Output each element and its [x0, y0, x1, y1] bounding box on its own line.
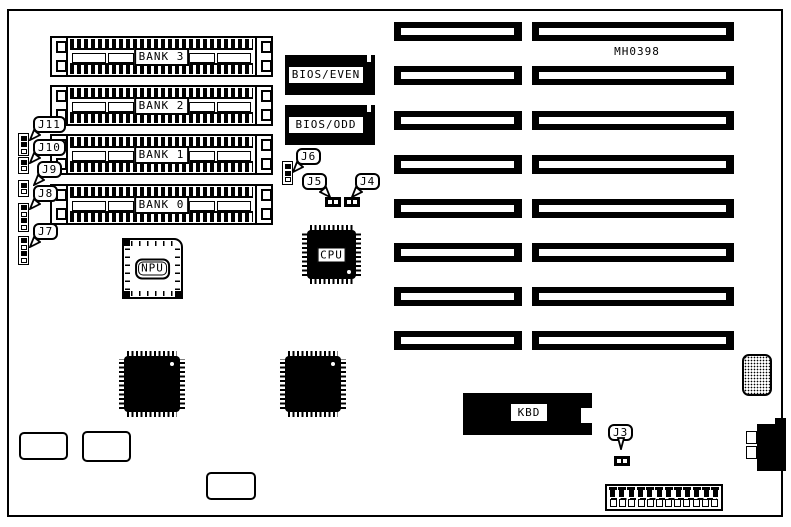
memory-bank-3: BANK 3: [50, 36, 273, 77]
chip-notch: [581, 408, 592, 423]
chip-pins-bottom: [288, 411, 338, 417]
power-socket-hole: [683, 499, 690, 507]
slot-opening: [539, 249, 726, 256]
simm-slot: [72, 53, 106, 63]
dip-socket: [206, 472, 256, 500]
expansion-slot-4-left: [394, 155, 522, 174]
power-socket-hole: [610, 499, 617, 507]
simm-slot: [217, 201, 251, 211]
socket-pins-bottom: [131, 291, 174, 296]
asic-chip-right: [280, 351, 346, 417]
expansion-slot-6-left: [394, 243, 522, 262]
edge-connector-pin-block: [746, 431, 757, 444]
simm-slot: [217, 102, 251, 112]
socket-pins-top: [131, 241, 174, 246]
power-pin: [657, 487, 662, 497]
asic-chip-left: [119, 351, 185, 417]
expansion-slot-8-right: [532, 331, 734, 350]
expansion-slot-2-left: [394, 66, 522, 85]
slot-opening: [401, 337, 514, 344]
cpu-label: CPU: [317, 247, 346, 262]
slot-opening: [539, 205, 726, 212]
kbd-label: KBD: [511, 404, 547, 421]
expansion-slot-7-left: [394, 287, 522, 306]
pin1-dot: [347, 270, 351, 274]
pin1-notch: [367, 55, 371, 62]
power-socket-hole: [711, 499, 718, 507]
simm-slot: [108, 102, 134, 112]
expansion-slot-8-left: [394, 331, 522, 350]
edge-connector: [757, 424, 786, 471]
expansion-slot-6-right: [532, 243, 734, 262]
cpu-pins-bottom: [310, 278, 353, 284]
power-socket-row: [610, 499, 718, 508]
power-pin: [638, 487, 643, 497]
slot-opening: [401, 161, 514, 168]
slot-opening: [539, 72, 726, 79]
motherboard-diagram: MH0398 BANK 3 BANK 2 BANK 1: [0, 0, 791, 527]
simm-slot: [217, 151, 251, 161]
jumper-block-j4: [344, 197, 360, 207]
simm-slot: [72, 201, 106, 211]
expansion-slot-5-left: [394, 199, 522, 218]
callout-j3: J3: [608, 424, 633, 441]
simm-slot: [189, 53, 215, 63]
jumper-block-j10: [18, 157, 29, 174]
cpu-pins-top: [310, 225, 353, 231]
callout-tail: [29, 236, 41, 248]
slot-opening: [539, 337, 726, 344]
power-pin: [685, 487, 690, 497]
socket-pins-right: [175, 247, 180, 290]
pin1-notch: [367, 105, 371, 112]
simm-latch-right: [255, 38, 271, 75]
jumper-block-j9: [18, 180, 29, 197]
callout-j6: J6: [296, 148, 321, 165]
chip-pins-right: [179, 359, 185, 409]
power-pin-row: [610, 487, 718, 497]
power-pin: [629, 487, 634, 497]
power-socket-hole: [656, 499, 663, 507]
power-pin: [610, 487, 615, 497]
simm-slot: [108, 201, 134, 211]
power-socket-hole: [647, 499, 654, 507]
socket-pins-left: [125, 247, 130, 290]
expansion-slot-7-right: [532, 287, 734, 306]
slot-opening: [401, 117, 514, 124]
slot-opening: [401, 293, 514, 300]
power-socket-hole: [619, 499, 626, 507]
callout-tail: [292, 161, 304, 173]
callout-j9: J9: [37, 161, 62, 178]
expansion-slot-5-right: [532, 199, 734, 218]
expansion-slot-2-right: [532, 66, 734, 85]
jumper-block-j7: [18, 236, 29, 265]
slot-opening: [539, 117, 726, 124]
memory-bank-2: BANK 2: [50, 85, 273, 126]
power-pin: [647, 487, 652, 497]
simm-slot: [72, 102, 106, 112]
simm-latch-right: [255, 87, 271, 124]
jumper-block-j11: [18, 133, 29, 156]
chip-pins-right: [340, 359, 346, 409]
power-socket-hole: [702, 499, 709, 507]
power-pin: [619, 487, 624, 497]
simm-latch-right: [255, 136, 271, 173]
callout-j4: J4: [355, 173, 380, 190]
callout-j11: J11: [33, 116, 66, 133]
jumper-block-j3: [614, 456, 630, 466]
jumper-block-j5: [325, 197, 341, 207]
chip-pins-left: [280, 359, 286, 409]
expansion-slot-1-left: [394, 22, 522, 41]
power-connector: [605, 484, 723, 511]
callout-tail: [319, 186, 331, 198]
simm-slot: [72, 151, 106, 161]
callout-j8: J8: [33, 185, 58, 202]
jumper-block-j8: [18, 203, 29, 232]
simm-slot: [189, 151, 215, 161]
simm-latch-left: [52, 38, 68, 75]
bios-even-label: BIOS/EVEN: [289, 67, 363, 83]
simm-slot: [217, 53, 251, 63]
slot-opening: [401, 28, 514, 35]
slot-opening: [539, 161, 726, 168]
slot-opening: [401, 205, 514, 212]
power-socket-hole: [638, 499, 645, 507]
power-socket-hole: [674, 499, 681, 507]
bios-even-chip: BIOS/EVEN: [285, 55, 375, 95]
slot-opening: [539, 293, 726, 300]
socket-corner: [123, 291, 130, 298]
callout-tail: [615, 437, 627, 450]
kbd-chip: KBD: [463, 393, 592, 435]
simm-slot: [189, 201, 215, 211]
power-pin: [666, 487, 671, 497]
power-pin: [704, 487, 709, 497]
expansion-slot-1-right: [532, 22, 734, 41]
expansion-slot-3-left: [394, 111, 522, 130]
chip-pins-bottom: [127, 411, 177, 417]
socket-corner: [123, 239, 130, 246]
cpu-chip: CPU: [302, 225, 361, 284]
pin1-dot: [331, 362, 335, 366]
edge-connector-pin-block: [746, 446, 757, 459]
cpu-pins-right: [355, 233, 361, 276]
callout-j7: J7: [33, 223, 58, 240]
expansion-slot-4-right: [532, 155, 734, 174]
chip-pins-top: [127, 351, 177, 357]
slot-opening: [539, 28, 726, 35]
dip-socket: [19, 432, 68, 460]
simm-slot: [189, 102, 215, 112]
power-socket-hole: [628, 499, 635, 507]
power-pin: [676, 487, 681, 497]
simm-latch-right: [255, 186, 271, 223]
bios-odd-label: BIOS/ODD: [289, 117, 363, 133]
memory-bank-1: BANK 1: [50, 134, 273, 175]
socket-corner: [175, 291, 182, 298]
chip-pins-left: [119, 359, 125, 409]
callout-j10: J10: [33, 139, 66, 156]
power-socket-hole: [693, 499, 700, 507]
power-pin: [713, 487, 718, 497]
simm-slot: [108, 53, 134, 63]
slot-opening: [401, 72, 514, 79]
bank-label: BANK 2: [134, 97, 190, 115]
memory-bank-0: BANK 0: [50, 184, 273, 225]
bank-label: BANK 1: [134, 146, 190, 164]
pin1-dot: [170, 362, 174, 366]
callout-tail: [29, 198, 41, 210]
keyboard-din-connector: [742, 354, 772, 396]
chip-pins-top: [288, 351, 338, 357]
power-socket-hole: [665, 499, 672, 507]
power-pin: [694, 487, 699, 497]
callout-tail: [351, 186, 363, 198]
bank-label: BANK 0: [134, 196, 190, 214]
simm-slot: [108, 151, 134, 161]
npu-label: NPU: [135, 258, 171, 279]
bios-odd-chip: BIOS/ODD: [285, 105, 375, 145]
callout-j5: J5: [302, 173, 327, 190]
npu-socket: NPU: [122, 238, 183, 299]
cpu-pins-left: [302, 233, 308, 276]
slot-opening: [401, 249, 514, 256]
expansion-slot-3-right: [532, 111, 734, 130]
part-number: MH0398: [600, 45, 674, 58]
dip-socket: [82, 431, 131, 462]
bank-label: BANK 3: [134, 48, 190, 66]
callout-j11-label: J11: [38, 118, 61, 131]
callout-j10-label: J10: [38, 141, 61, 154]
